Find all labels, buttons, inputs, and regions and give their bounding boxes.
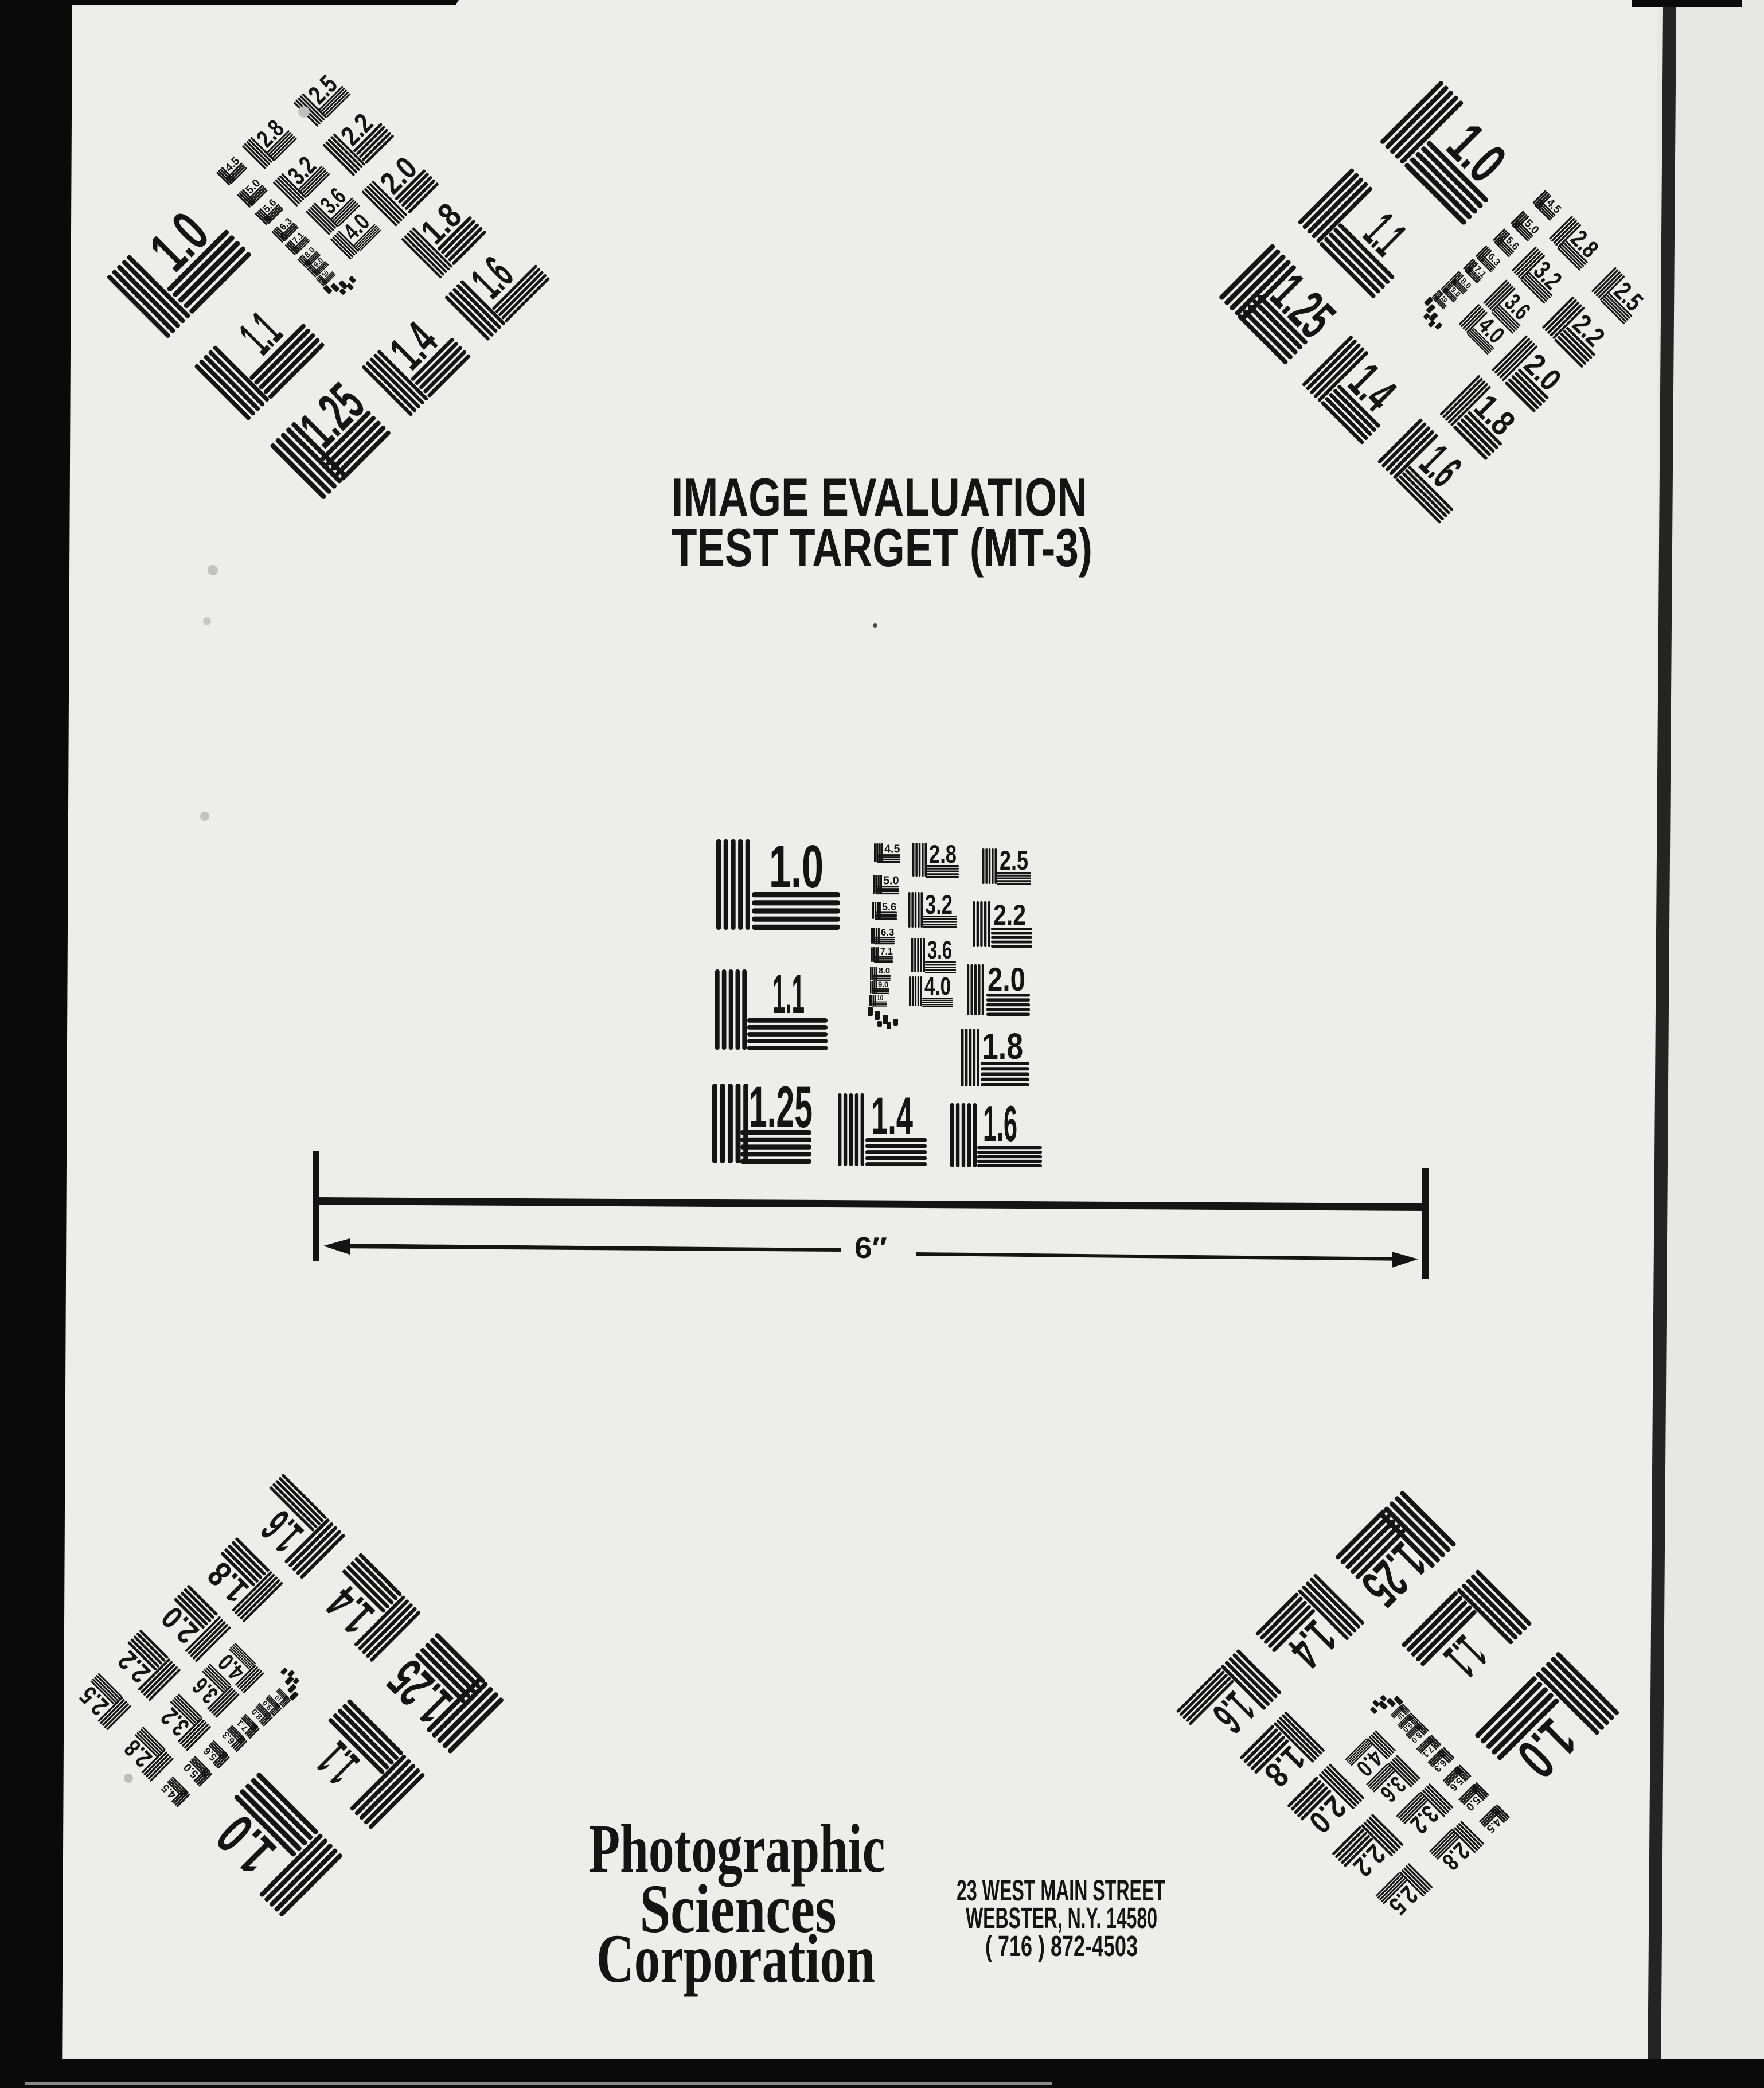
svg-text:TEST TARGET (MT-3): TEST TARGET (MT-3) [672,517,1092,578]
svg-text:6″: 6″ [854,1232,887,1265]
svg-text:Corporation: Corporation [596,1921,875,1997]
svg-text:( 716 ) 872-4503: ( 716 ) 872-4503 [985,1930,1138,1962]
